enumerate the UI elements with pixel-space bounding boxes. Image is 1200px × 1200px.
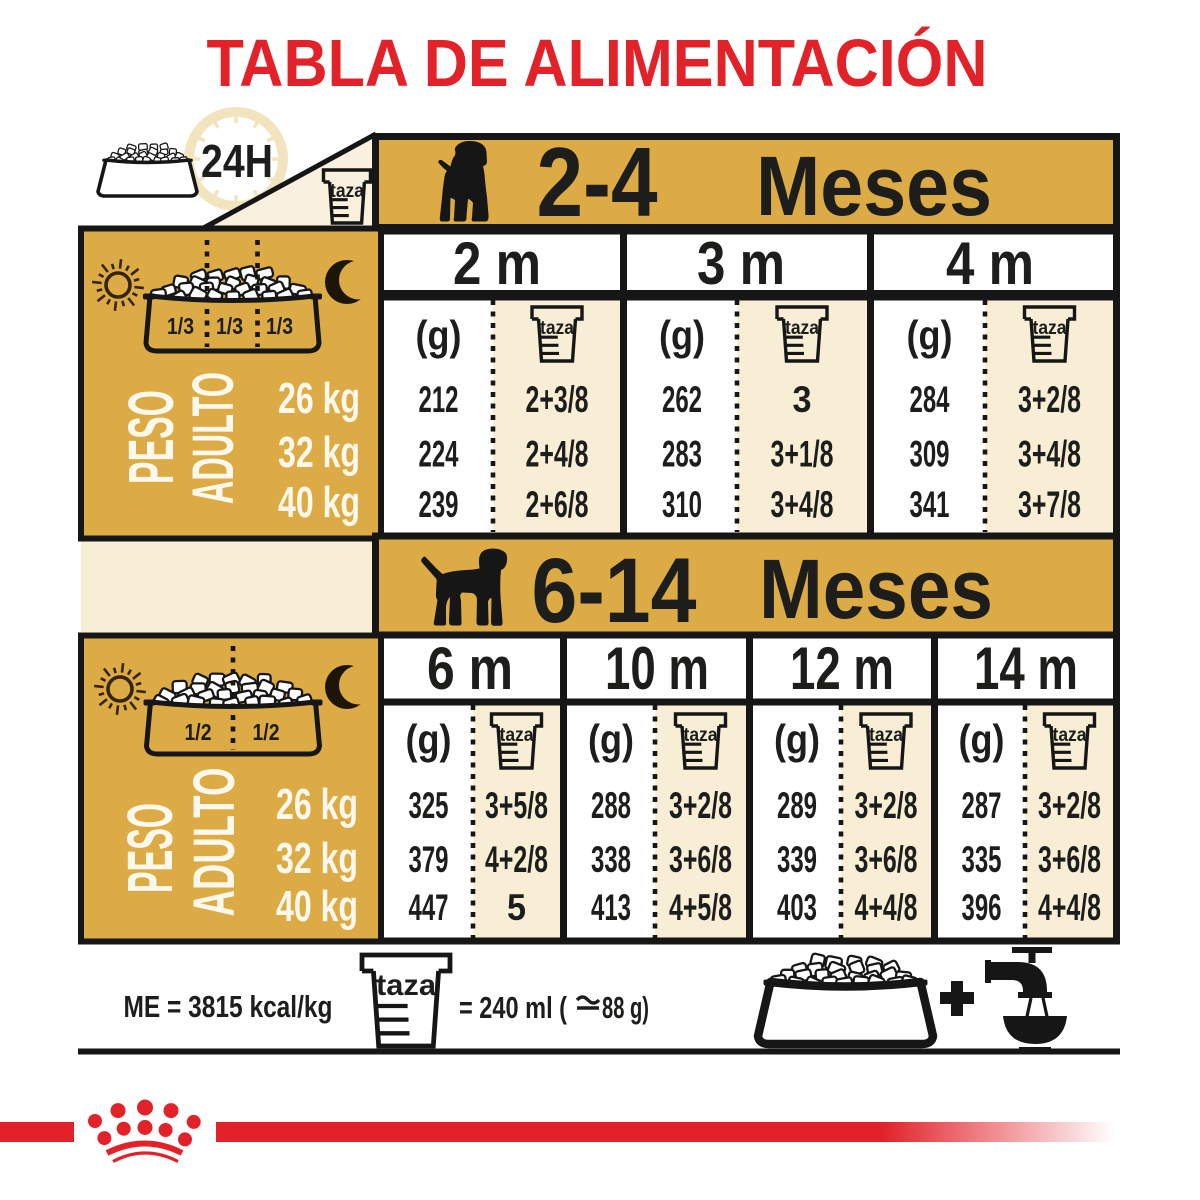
svg-text:3+2/8: 3+2/8 <box>669 785 732 826</box>
svg-text:taza: taza <box>869 725 903 746</box>
svg-text:(g): (g) <box>907 312 953 359</box>
svg-text:1/2: 1/2 <box>185 719 212 745</box>
svg-text:287: 287 <box>962 785 1002 826</box>
svg-text:289: 289 <box>777 785 817 826</box>
svg-text:4+4/8: 4+4/8 <box>1038 887 1101 928</box>
svg-text:379: 379 <box>409 839 449 880</box>
svg-text:288: 288 <box>591 785 631 826</box>
svg-text:3 m: 3 m <box>697 230 785 297</box>
svg-text:309: 309 <box>910 434 950 475</box>
svg-text:2-4: 2-4 <box>537 127 658 237</box>
svg-text:88 g): 88 g) <box>602 990 649 1025</box>
svg-text:4 m: 4 m <box>946 230 1034 297</box>
svg-text:3+4/8: 3+4/8 <box>1018 434 1081 475</box>
svg-text:396: 396 <box>962 887 1002 928</box>
svg-text:taza: taza <box>330 181 364 202</box>
svg-text:4+5/8: 4+5/8 <box>669 887 732 928</box>
svg-text:1/2: 1/2 <box>253 719 280 745</box>
svg-text:(g): (g) <box>588 716 634 763</box>
svg-text:(g): (g) <box>774 716 820 763</box>
svg-text:(g): (g) <box>959 716 1005 763</box>
svg-text:1/3: 1/3 <box>266 313 293 339</box>
svg-text:(g): (g) <box>416 312 462 359</box>
svg-text:taza: taza <box>785 318 819 339</box>
svg-text:3+5/8: 3+5/8 <box>485 785 548 826</box>
svg-text:14 m: 14 m <box>974 635 1078 702</box>
svg-text:(g): (g) <box>659 312 705 359</box>
svg-text:3+1/8: 3+1/8 <box>771 434 834 475</box>
svg-text:Meses: Meses <box>756 139 992 233</box>
svg-text:3+6/8: 3+6/8 <box>669 839 732 880</box>
svg-text:Meses: Meses <box>759 542 993 636</box>
svg-text:2+3/8: 2+3/8 <box>526 379 589 420</box>
svg-text:284: 284 <box>910 379 950 420</box>
svg-text:2+4/8: 2+4/8 <box>526 434 589 475</box>
svg-text:3+6/8: 3+6/8 <box>855 839 918 880</box>
svg-text:339: 339 <box>777 839 817 880</box>
svg-text:24H: 24H <box>201 135 273 187</box>
svg-text:taza: taza <box>1053 725 1087 746</box>
svg-text:3+2/8: 3+2/8 <box>1018 379 1081 420</box>
svg-text:4+4/8: 4+4/8 <box>855 887 918 928</box>
svg-text:2 m: 2 m <box>453 230 541 297</box>
svg-text:26 kg: 26 kg <box>276 780 358 829</box>
svg-text:TABLA DE ALIMENTACIÓN: TABLA DE ALIMENTACIÓN <box>207 26 988 101</box>
svg-text:262: 262 <box>662 379 702 420</box>
svg-text:325: 325 <box>409 785 449 826</box>
svg-text:10 m: 10 m <box>605 635 709 702</box>
svg-text:239: 239 <box>419 484 459 525</box>
svg-text:32 kg: 32 kg <box>278 428 360 477</box>
svg-text:40 kg: 40 kg <box>276 882 358 931</box>
svg-text:1/3: 1/3 <box>216 313 243 339</box>
svg-text:3+2/8: 3+2/8 <box>855 785 918 826</box>
svg-text:taza: taza <box>540 318 574 339</box>
svg-text:ME = 3815 kcal/kg: ME = 3815 kcal/kg <box>124 989 333 1024</box>
svg-text:1/3: 1/3 <box>167 313 194 339</box>
svg-text:6 m: 6 m <box>427 635 513 702</box>
svg-text:3: 3 <box>793 379 812 420</box>
svg-text:212: 212 <box>419 379 459 420</box>
svg-text:403: 403 <box>777 887 817 928</box>
svg-text:413: 413 <box>591 887 631 928</box>
svg-text:taza: taza <box>500 725 534 746</box>
svg-text:338: 338 <box>591 839 631 880</box>
svg-text:12 m: 12 m <box>790 635 894 702</box>
svg-text:283: 283 <box>662 434 702 475</box>
svg-text:taza: taza <box>376 969 436 1002</box>
svg-text:3+6/8: 3+6/8 <box>1038 839 1101 880</box>
svg-text:5: 5 <box>507 887 526 928</box>
svg-text:40 kg: 40 kg <box>278 478 360 527</box>
svg-text:taza: taza <box>1033 318 1067 339</box>
svg-text:6-14: 6-14 <box>532 540 697 642</box>
svg-text:= 240 ml (: = 240 ml ( <box>459 990 568 1025</box>
svg-text:447: 447 <box>409 887 449 928</box>
svg-text:3+7/8: 3+7/8 <box>1018 484 1081 525</box>
svg-text:224: 224 <box>419 434 459 475</box>
svg-text:310: 310 <box>662 484 702 525</box>
svg-text:3+2/8: 3+2/8 <box>1038 785 1101 826</box>
svg-text:(g): (g) <box>406 716 452 763</box>
svg-text:335: 335 <box>962 839 1002 880</box>
svg-text:32 kg: 32 kg <box>276 834 358 883</box>
svg-text:4+2/8: 4+2/8 <box>485 839 548 880</box>
svg-text:2+6/8: 2+6/8 <box>526 484 589 525</box>
svg-text:taza: taza <box>684 725 718 746</box>
svg-text:3+4/8: 3+4/8 <box>771 484 834 525</box>
svg-text:341: 341 <box>910 484 950 525</box>
svg-text:26 kg: 26 kg <box>278 374 360 423</box>
